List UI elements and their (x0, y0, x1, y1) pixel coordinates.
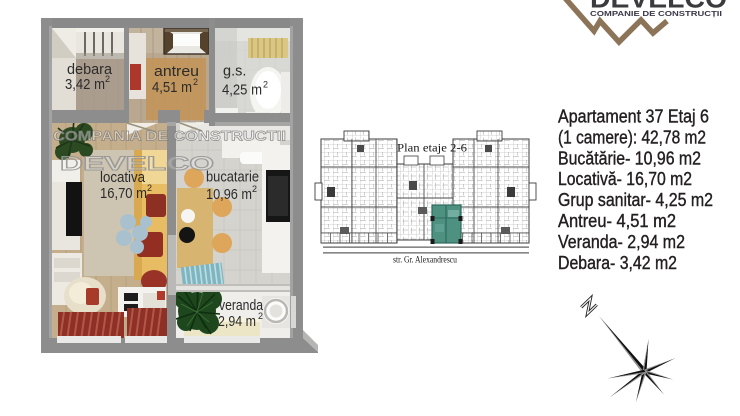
svg-text:4,25 m: 4,25 m (222, 83, 262, 99)
svg-text:2: 2 (252, 184, 257, 194)
svg-text:Locativă- 16,70 m2: Locativă- 16,70 m2 (558, 169, 692, 189)
svg-text:g.s.: g.s. (223, 64, 246, 80)
svg-text:DEVELCO: DEVELCO (60, 153, 214, 175)
svg-text:Plan etaje 2-6: Plan etaje 2-6 (397, 143, 467, 155)
svg-text:str. Gr. Alexandrescu: str. Gr. Alexandrescu (393, 256, 457, 266)
svg-text:Debara- 3,42 m2: Debara- 3,42 m2 (558, 253, 677, 273)
svg-text:COMPANIA DE CONSTRUCTII: COMPANIA DE CONSTRUCTII (53, 128, 286, 144)
svg-text:Grup sanitar- 4,25 m2: Grup sanitar- 4,25 m2 (558, 190, 713, 210)
svg-text:2: 2 (105, 74, 110, 84)
svg-text:2: 2 (193, 77, 198, 87)
svg-text:COMPANIE DE CONSTRUCȚII: COMPANIE DE CONSTRUCȚII (590, 9, 722, 18)
svg-text:2: 2 (263, 80, 268, 90)
svg-text:4,51 m: 4,51 m (152, 80, 192, 96)
svg-text:Veranda- 2,94 m2: Veranda- 2,94 m2 (558, 232, 685, 252)
svg-text:Apartament 37 Etaj 6: Apartament 37 Etaj 6 (558, 107, 709, 127)
svg-text:16,70 m: 16,70 m (100, 186, 147, 202)
svg-text:Bucătărie- 10,96 m2: Bucătărie- 10,96 m2 (558, 148, 701, 168)
svg-text:2: 2 (258, 311, 263, 321)
svg-text:3,42 m: 3,42 m (65, 77, 105, 93)
svg-text:2,94 m: 2,94 m (218, 314, 256, 330)
svg-text:(1 camere): 42,78 m2: (1 camere): 42,78 m2 (558, 127, 706, 147)
svg-text:Antreu- 4,51 m2: Antreu- 4,51 m2 (558, 211, 676, 231)
svg-text:2: 2 (147, 183, 152, 193)
svg-text:10,96 m: 10,96 m (206, 187, 252, 203)
